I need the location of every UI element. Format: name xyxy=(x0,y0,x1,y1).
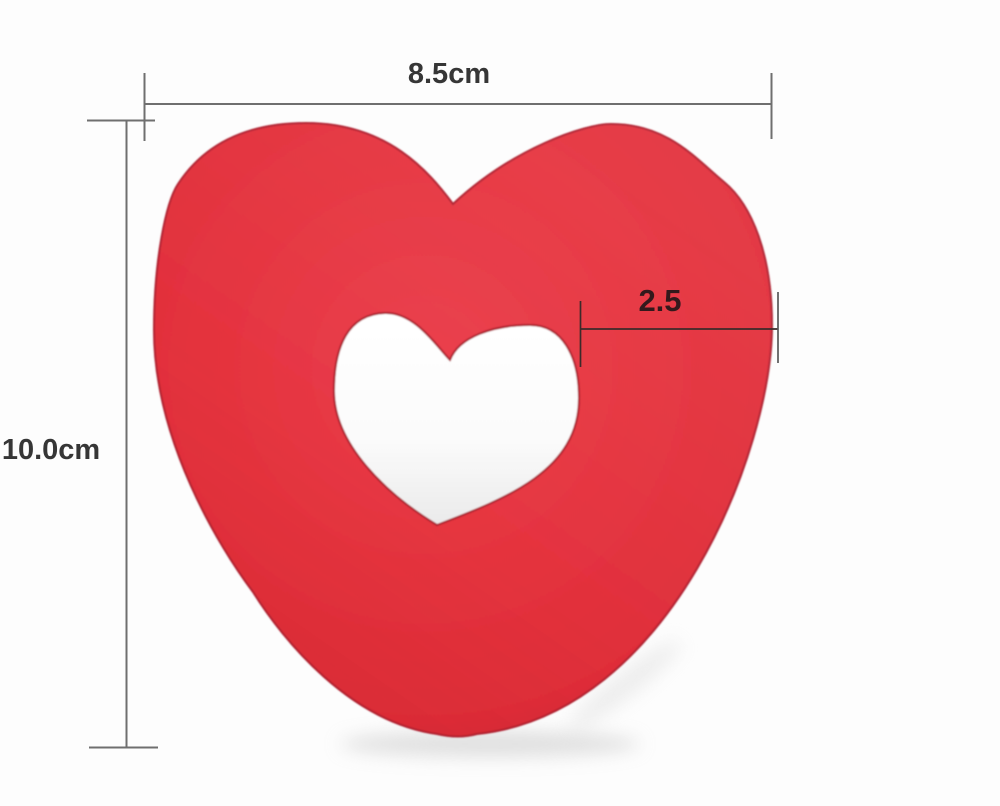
svg-text:2.5: 2.5 xyxy=(638,283,681,318)
svg-text:8.5cm: 8.5cm xyxy=(408,58,490,90)
svg-text:10.0cm: 10.0cm xyxy=(2,434,100,466)
